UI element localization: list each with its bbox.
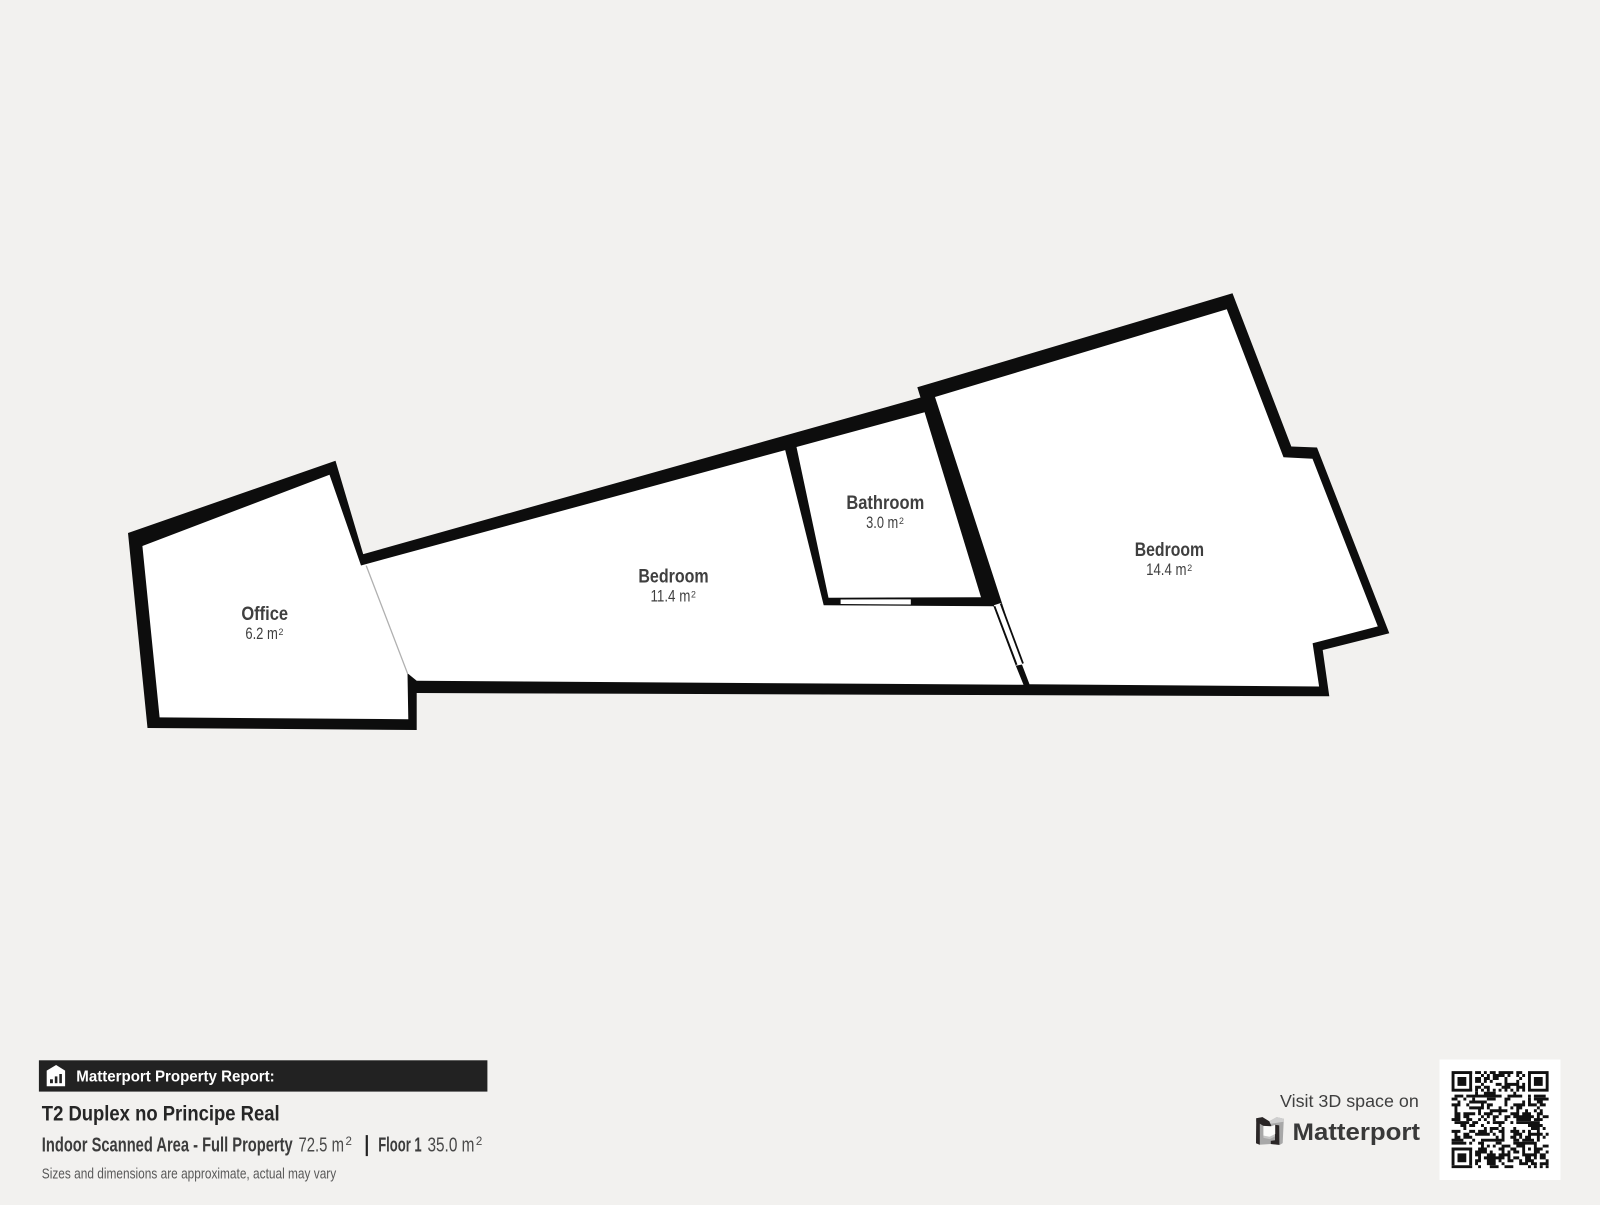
svg-text:Matterport Property Report:: Matterport Property Report: bbox=[76, 1069, 274, 1086]
svg-text:3.0 m: 3.0 m bbox=[866, 514, 898, 532]
svg-text:35.0 m: 35.0 m bbox=[428, 1135, 475, 1157]
svg-text:Matterport: Matterport bbox=[1293, 1119, 1421, 1146]
svg-text:Bathroom: Bathroom bbox=[846, 493, 924, 514]
svg-text:2: 2 bbox=[899, 516, 904, 526]
svg-text:Bedroom: Bedroom bbox=[638, 566, 708, 587]
svg-text:2: 2 bbox=[1187, 563, 1192, 573]
svg-text:6.2 m: 6.2 m bbox=[245, 625, 278, 643]
svg-text:11.4 m: 11.4 m bbox=[650, 587, 690, 605]
svg-text:T2 Duplex no Principe Real: T2 Duplex no Principe Real bbox=[42, 1103, 280, 1126]
svg-text:Office: Office bbox=[241, 604, 288, 625]
svg-text:72.5 m: 72.5 m bbox=[299, 1135, 345, 1157]
svg-text:14.4 m: 14.4 m bbox=[1146, 561, 1186, 579]
svg-text:2: 2 bbox=[279, 627, 284, 637]
svg-text:2: 2 bbox=[691, 589, 696, 599]
svg-text:Sizes and dimensions are appro: Sizes and dimensions are approximate, ac… bbox=[42, 1167, 337, 1183]
svg-text:Floor 1: Floor 1 bbox=[378, 1135, 422, 1157]
svg-text:Bedroom: Bedroom bbox=[1135, 540, 1204, 561]
svg-text:Visit 3D space on: Visit 3D space on bbox=[1280, 1092, 1419, 1111]
svg-text:2: 2 bbox=[346, 1136, 352, 1148]
svg-text:2: 2 bbox=[476, 1136, 482, 1148]
svg-text:Indoor Scanned Area - Full Pro: Indoor Scanned Area - Full Property bbox=[42, 1135, 294, 1157]
